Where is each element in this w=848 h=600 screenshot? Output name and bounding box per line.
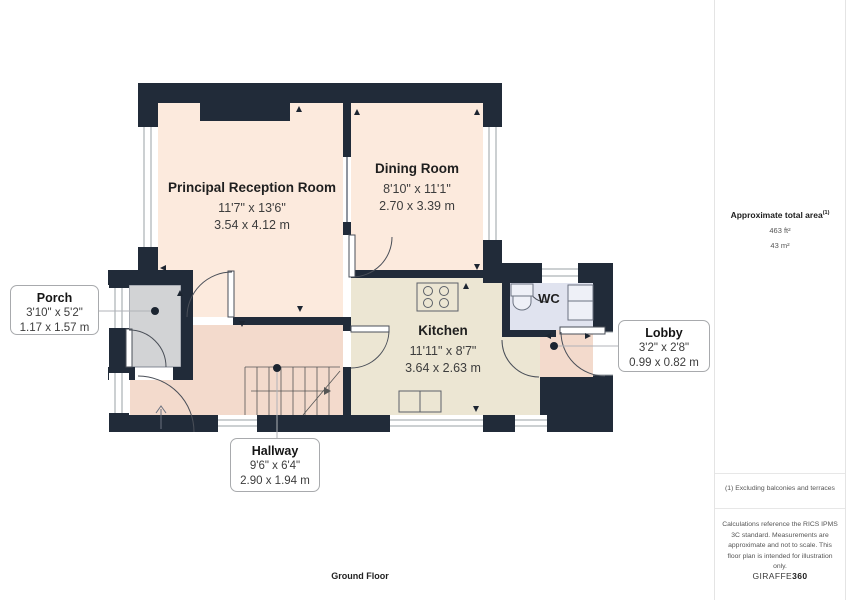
door-gap-lobby-right — [593, 332, 613, 375]
total-area-footnote-mark: (1) — [823, 210, 830, 216]
window-porch-left — [109, 288, 129, 328]
window-reception-left — [138, 127, 158, 247]
window-hallway-bottom — [218, 415, 257, 432]
total-area-m: 43 m² — [715, 241, 845, 250]
hallway-name: Hallway — [233, 443, 317, 459]
reception-room-name: Principal Reception Room — [168, 180, 336, 195]
sidebar-disclaimer: Calculations reference the RICS IPMS 3C … — [722, 520, 838, 573]
hallway-dims-imperial: 9'6" x 6'4" — [233, 459, 317, 474]
brand-regular: GIRAFFE — [752, 571, 792, 581]
kitchen-room-name: Kitchen — [418, 323, 468, 338]
kitchen-dims-imperial: 11'11" x 8'7" — [410, 344, 477, 358]
dining-dims-imperial: 8'10" x 11'1" — [383, 182, 451, 196]
window-dining-right — [483, 127, 502, 240]
room-porch-fill — [129, 285, 181, 367]
porch-dims-metric: 1.17 x 1.57 m — [13, 321, 96, 336]
dining-room-name: Dining Room — [375, 161, 459, 176]
brand-bold: 360 — [792, 571, 807, 581]
lobby-dims-imperial: 3'2" x 2'8" — [621, 341, 707, 356]
window-kitchen-bottom — [390, 415, 483, 432]
window-lobby-bottom — [515, 415, 547, 432]
hallway-callout: Hallway 9'6" x 6'4" 2.90 x 1.94 m — [230, 438, 320, 492]
total-area-label: Approximate total area — [731, 210, 823, 220]
lobby-callout: Lobby 3'2" x 2'8" 0.99 x 0.82 m — [618, 320, 710, 372]
porch-callout: Porch 3'10" x 5'2" 1.17 x 1.57 m — [10, 285, 99, 335]
reception-dims-metric: 3.54 x 4.12 m — [214, 218, 290, 232]
lobby-name: Lobby — [621, 325, 707, 341]
sidebar-divider-2 — [715, 508, 845, 509]
toilet-icon — [511, 284, 533, 310]
dining-dims-metric: 2.70 x 3.39 m — [379, 199, 455, 213]
window-hallway-left — [109, 373, 129, 413]
window-wc-top — [542, 263, 578, 283]
basin-icon — [568, 285, 593, 320]
lobby-dims-metric: 0.99 x 0.82 m — [621, 356, 707, 371]
lobby-leader-dot — [550, 342, 558, 350]
total-area-ft: 463 ft² — [715, 226, 845, 235]
info-sidebar: Approximate total area(1) 463 ft² 43 m² … — [715, 0, 845, 600]
sidebar-right-border — [845, 0, 846, 600]
total-area-title: Approximate total area(1) — [715, 210, 845, 220]
wc-room-name: WC — [538, 291, 560, 306]
sidebar-footnote: (1) Excluding balconies and terraces — [719, 485, 841, 492]
reception-dims-imperial: 11'7" x 13'6" — [218, 201, 286, 215]
floorplan-page: Principal Reception Room 11'7" x 13'6" 3… — [0, 0, 848, 600]
floor-name-label: Ground Floor — [310, 571, 410, 581]
sidebar-divider-1 — [715, 473, 845, 474]
porch-name: Porch — [13, 290, 96, 306]
hallway-leader-dot — [273, 364, 281, 372]
porch-dims-imperial: 3'10" x 5'2" — [13, 306, 96, 321]
hallway-dims-metric: 2.90 x 1.94 m — [233, 474, 317, 489]
kitchen-dims-metric: 3.64 x 2.63 m — [405, 361, 481, 375]
porch-leader-dot — [151, 307, 159, 315]
total-area-block: Approximate total area(1) 463 ft² 43 m² — [715, 210, 845, 250]
brand-logo: GIRAFFE360 — [715, 571, 845, 581]
